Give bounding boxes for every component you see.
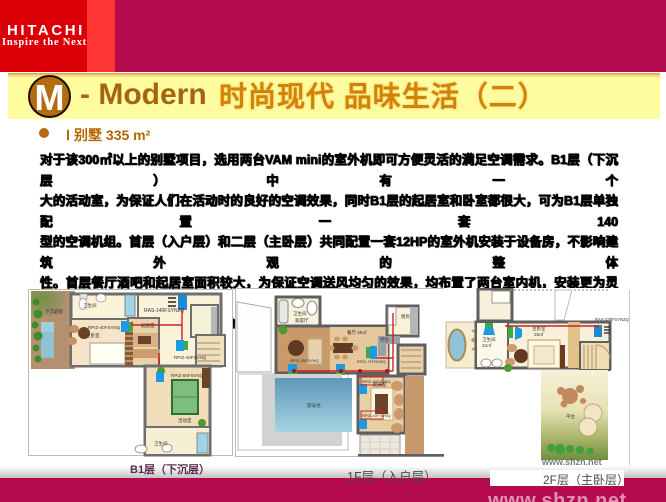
svg-text:RPIZ-40FSVNQ: RPIZ-40FSVNQ — [362, 413, 391, 418]
svg-text:起居室: 起居室 — [141, 322, 155, 329]
svg-text:卫生间: 卫生间 — [154, 440, 168, 447]
svg-text:RPIZ-56FSVNQ: RPIZ-56FSVNQ — [171, 373, 204, 378]
svg-text:厨房: 厨房 — [401, 313, 410, 320]
svg-text:吧台: 吧台 — [380, 336, 389, 343]
svg-text:RAS-335FSYN2Q: RAS-335FSYN2Q — [595, 317, 629, 322]
svg-text:卫生间: 卫生间 — [293, 310, 307, 317]
svg-text:22㎡: 22㎡ — [482, 342, 492, 348]
svg-text:起居室: 起居室 — [373, 381, 387, 388]
svg-text:RPIZ-40FSVNQ: RPIZ-40FSVNQ — [88, 325, 121, 330]
svg-text:RPIZ-40FSVNQ: RPIZ-40FSVNQ — [174, 355, 207, 360]
svg-text:游泳池: 游泳池 — [307, 402, 321, 409]
svg-text:主卧室: 主卧室 — [86, 332, 100, 339]
svg-text:RPIZ-71FSVNQ: RPIZ-71FSVNQ — [357, 359, 386, 364]
svg-text:平台: 平台 — [566, 413, 575, 420]
svg-text:卫生间: 卫生间 — [83, 302, 97, 309]
svg-text:26㎡: 26㎡ — [534, 331, 544, 337]
svg-text:RAS-140FSYN2Q: RAS-140FSYN2Q — [144, 308, 184, 314]
svg-text:活动室: 活动室 — [178, 417, 192, 424]
svg-text:www.shzn.net: www.shzn.net — [541, 457, 602, 467]
svg-text:下沉庭院: 下沉庭院 — [45, 308, 63, 315]
svg-text:家庭厅: 家庭厅 — [295, 317, 309, 324]
svg-text:卫生间: 卫生间 — [482, 336, 496, 343]
svg-text:餐厅 50㎡: 餐厅 50㎡ — [347, 329, 367, 336]
svg-text:RPIZ-05FSVNQ: RPIZ-05FSVNQ — [290, 358, 319, 363]
